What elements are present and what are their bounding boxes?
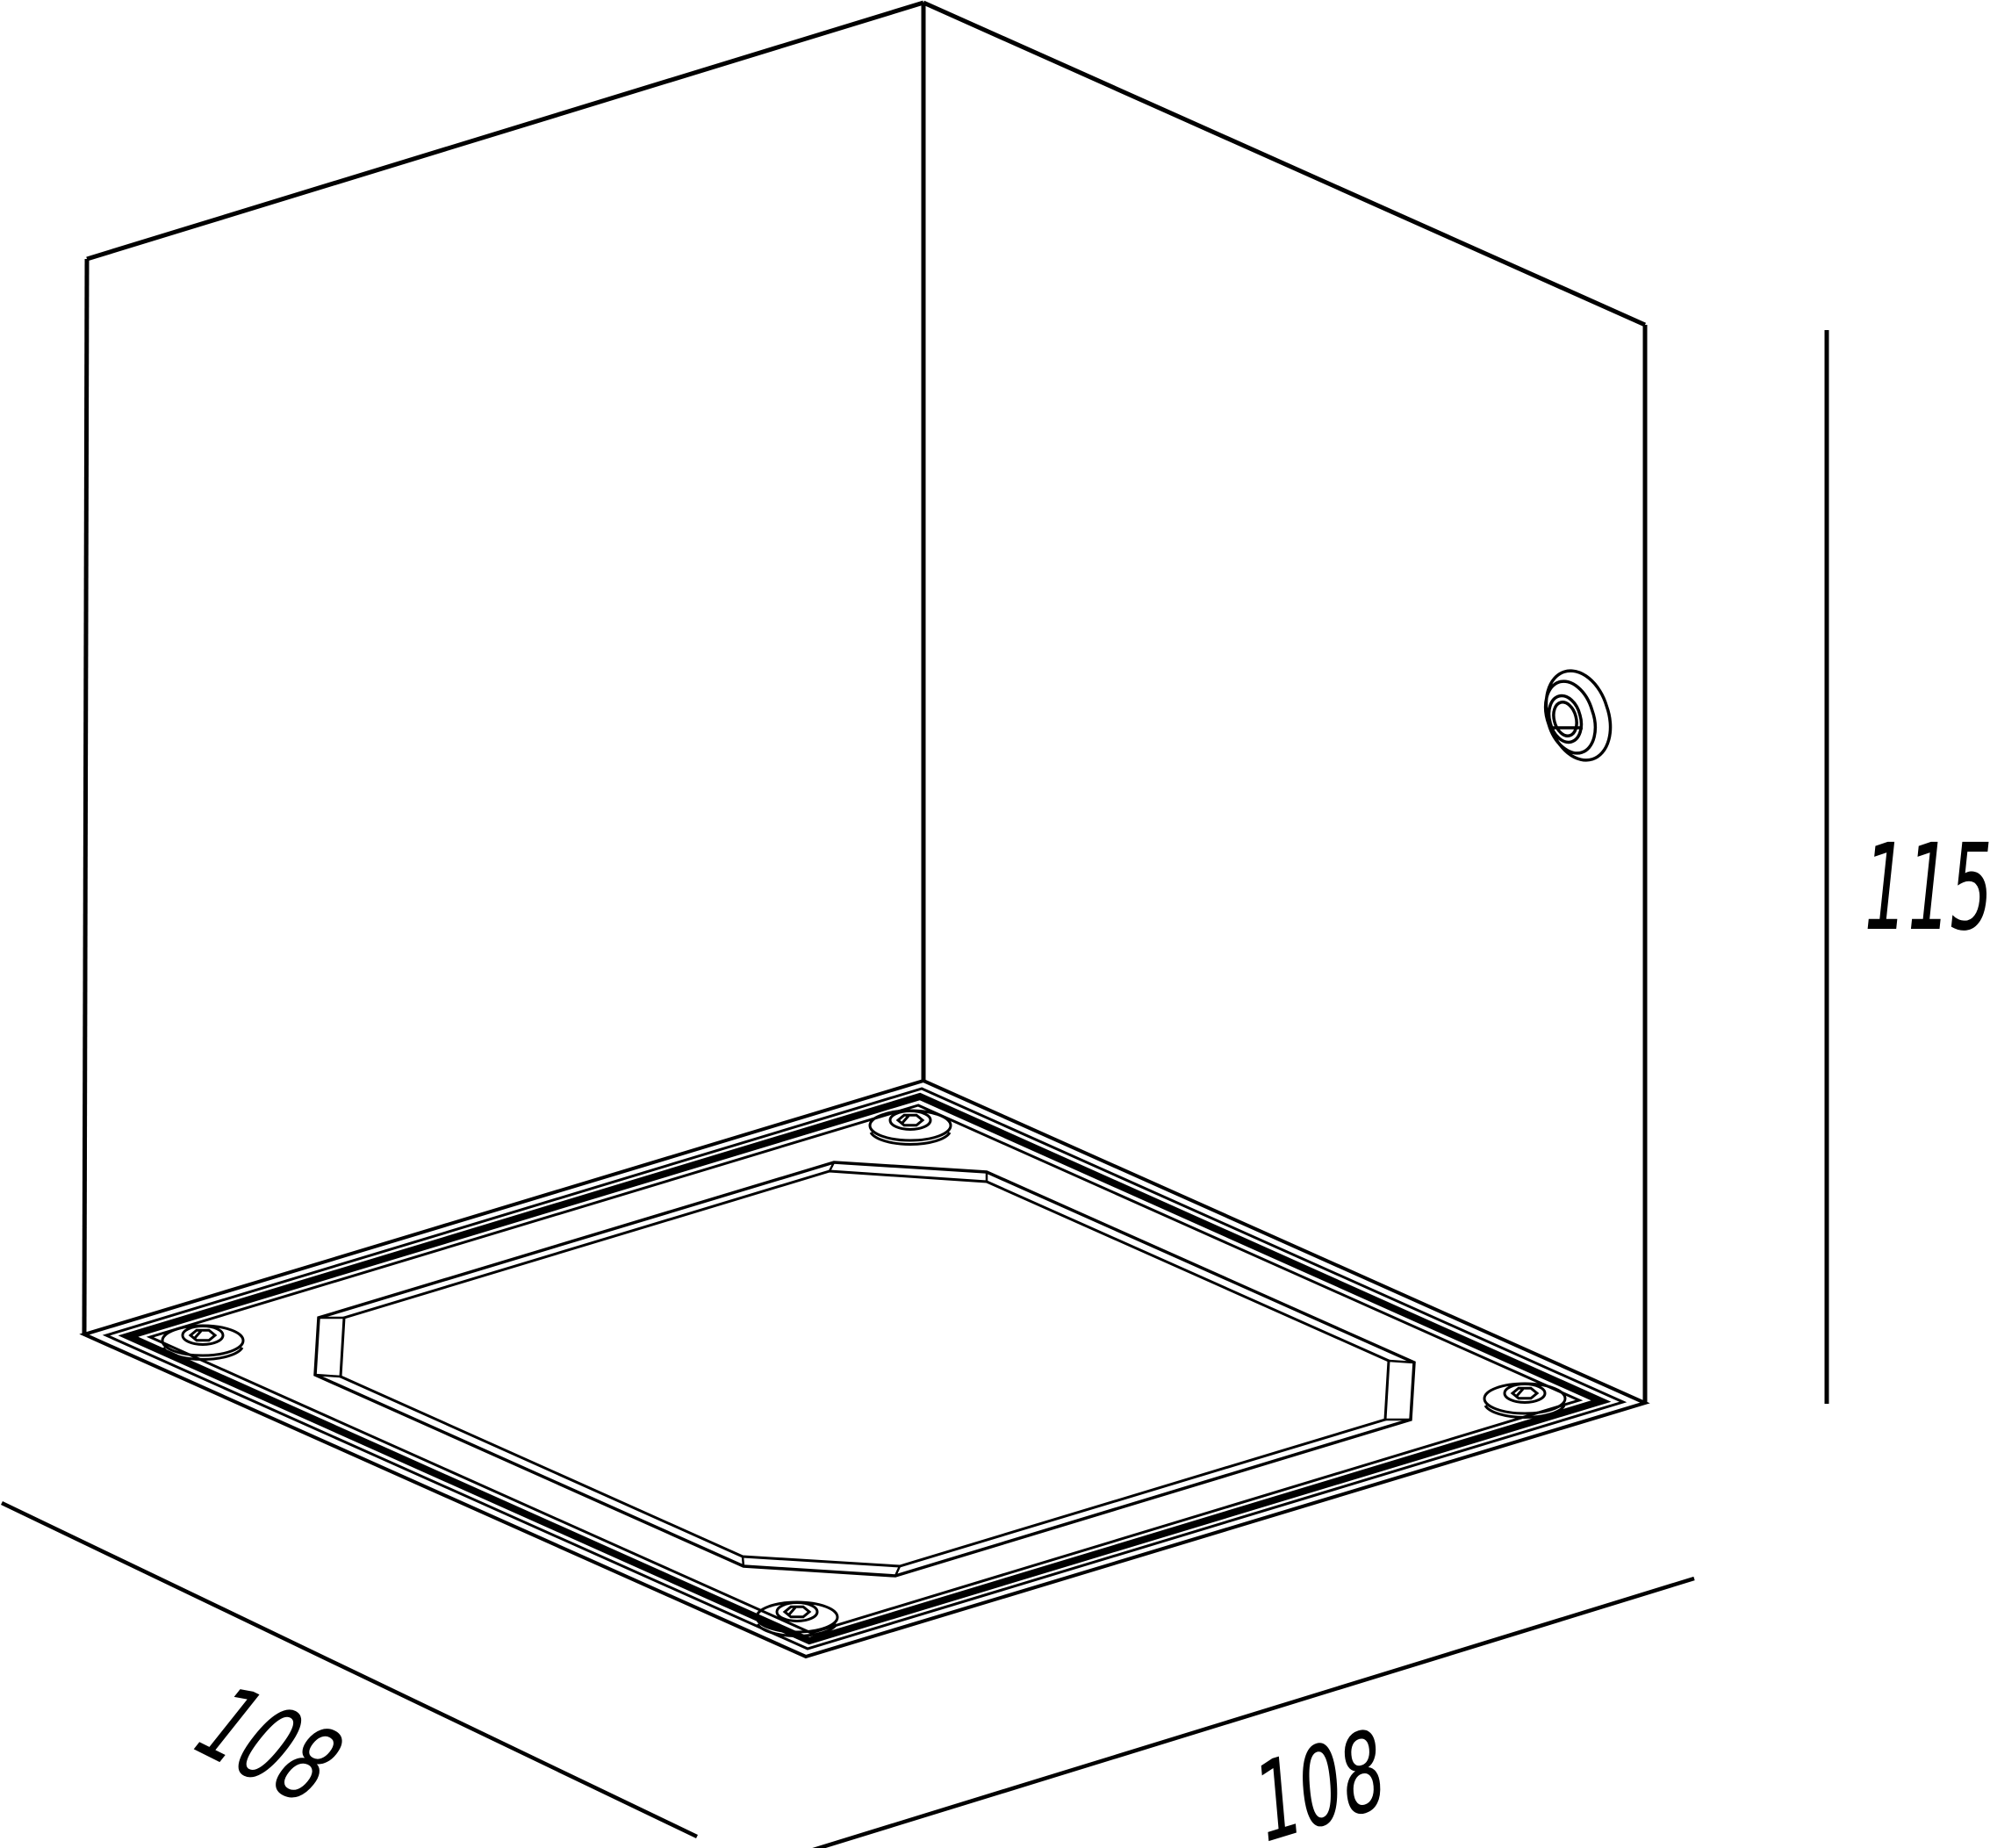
- bottom-face-gasket-line: [128, 1097, 1601, 1641]
- bottom-face-inner-line: [150, 1105, 1579, 1633]
- bottom-face: [84, 1081, 1645, 1657]
- body-edge-top-right: [923, 3, 1645, 325]
- height-dimension-label: 115: [1857, 818, 1990, 958]
- width-dimension-line: [808, 1578, 1694, 1848]
- side-knob-icon: [1546, 671, 1611, 760]
- screw-left-icon: [162, 1326, 243, 1359]
- depth-dimension-label: 108: [169, 1666, 367, 1825]
- side-fitting: [1546, 671, 1611, 760]
- screw-top-icon: [870, 1111, 951, 1144]
- screw-right-icon: [1484, 1384, 1565, 1417]
- cube-luminaire-technical-drawing: 108 108 115: [0, 0, 1990, 1848]
- width-dimension-label: 108: [1252, 1704, 1389, 1848]
- body-edge-top-left: [87, 3, 923, 259]
- bottom-face-outline: [84, 1081, 1645, 1657]
- dimension-drawing-canvas: 108 108 115: [0, 0, 1990, 1848]
- fixing-screws: [162, 1111, 1565, 1636]
- dimension-annotations: 108 108 115: [2, 330, 1990, 1848]
- luminaire-body: [84, 3, 1645, 1403]
- body-edge-left: [84, 259, 87, 1334]
